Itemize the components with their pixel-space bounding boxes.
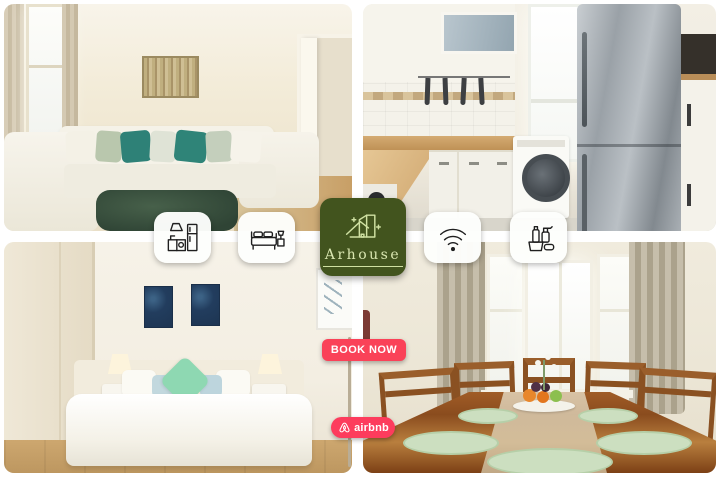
bedside-lamp xyxy=(258,354,282,374)
wall-art xyxy=(142,56,199,98)
flower-stem xyxy=(543,360,545,390)
orange-fruit xyxy=(537,391,549,403)
kitchen-amenity-badge xyxy=(154,212,211,263)
photo-living-room xyxy=(4,4,352,231)
flower xyxy=(535,360,541,366)
listing-collage: Arhouse BOOK NOW airbnb xyxy=(0,0,720,477)
plum xyxy=(531,382,541,392)
cushion xyxy=(65,130,97,163)
duvet xyxy=(66,394,312,466)
airbnb-belo-icon xyxy=(337,421,352,435)
teal-cushion xyxy=(120,130,153,163)
placemat xyxy=(403,431,499,455)
wifi-icon xyxy=(433,219,473,256)
photo-dining-room xyxy=(363,242,716,473)
bed-amenity-badge xyxy=(238,212,295,263)
flower xyxy=(545,354,551,360)
washer-door xyxy=(522,154,570,202)
wifi-amenity-badge xyxy=(424,212,481,263)
tile-backsplash xyxy=(363,82,515,140)
cushion xyxy=(230,130,262,163)
utensil xyxy=(443,78,449,105)
botanical-print xyxy=(316,268,352,330)
house-logo-icon xyxy=(341,207,385,247)
placemat xyxy=(487,448,613,473)
tall-cabinet xyxy=(681,80,716,231)
airbnb-label: airbnb xyxy=(354,422,389,434)
brand-name: Arhouse xyxy=(323,248,403,266)
cushion xyxy=(149,130,177,162)
flower xyxy=(551,364,557,370)
dark-shelf-nook xyxy=(681,34,716,80)
stainless-fridge xyxy=(577,4,681,231)
navy-art-print xyxy=(191,284,220,326)
cleaning-supplies-icon xyxy=(519,219,559,256)
photo-bedroom xyxy=(4,242,352,473)
cushion xyxy=(95,130,123,163)
cushion xyxy=(205,130,233,162)
photo-kitchen xyxy=(363,4,716,231)
bed-icon xyxy=(247,219,287,256)
navy-art-print xyxy=(144,286,173,328)
green-apple xyxy=(550,390,562,402)
cabinet-glass-panel xyxy=(441,12,517,54)
placemat xyxy=(458,408,518,424)
brand-logo: Arhouse xyxy=(320,198,406,276)
placemat xyxy=(596,431,692,455)
tile-border xyxy=(363,92,515,100)
airbnb-badge[interactable]: airbnb xyxy=(331,417,395,438)
washing-machine xyxy=(513,136,569,218)
utensil xyxy=(425,78,431,105)
book-now-button[interactable]: BOOK NOW xyxy=(322,339,406,361)
kitchen-icon xyxy=(163,219,203,256)
cleaning-amenity-badge xyxy=(510,212,567,263)
placemat xyxy=(578,408,638,424)
pillow xyxy=(122,370,156,397)
teal-cushion xyxy=(173,129,208,163)
